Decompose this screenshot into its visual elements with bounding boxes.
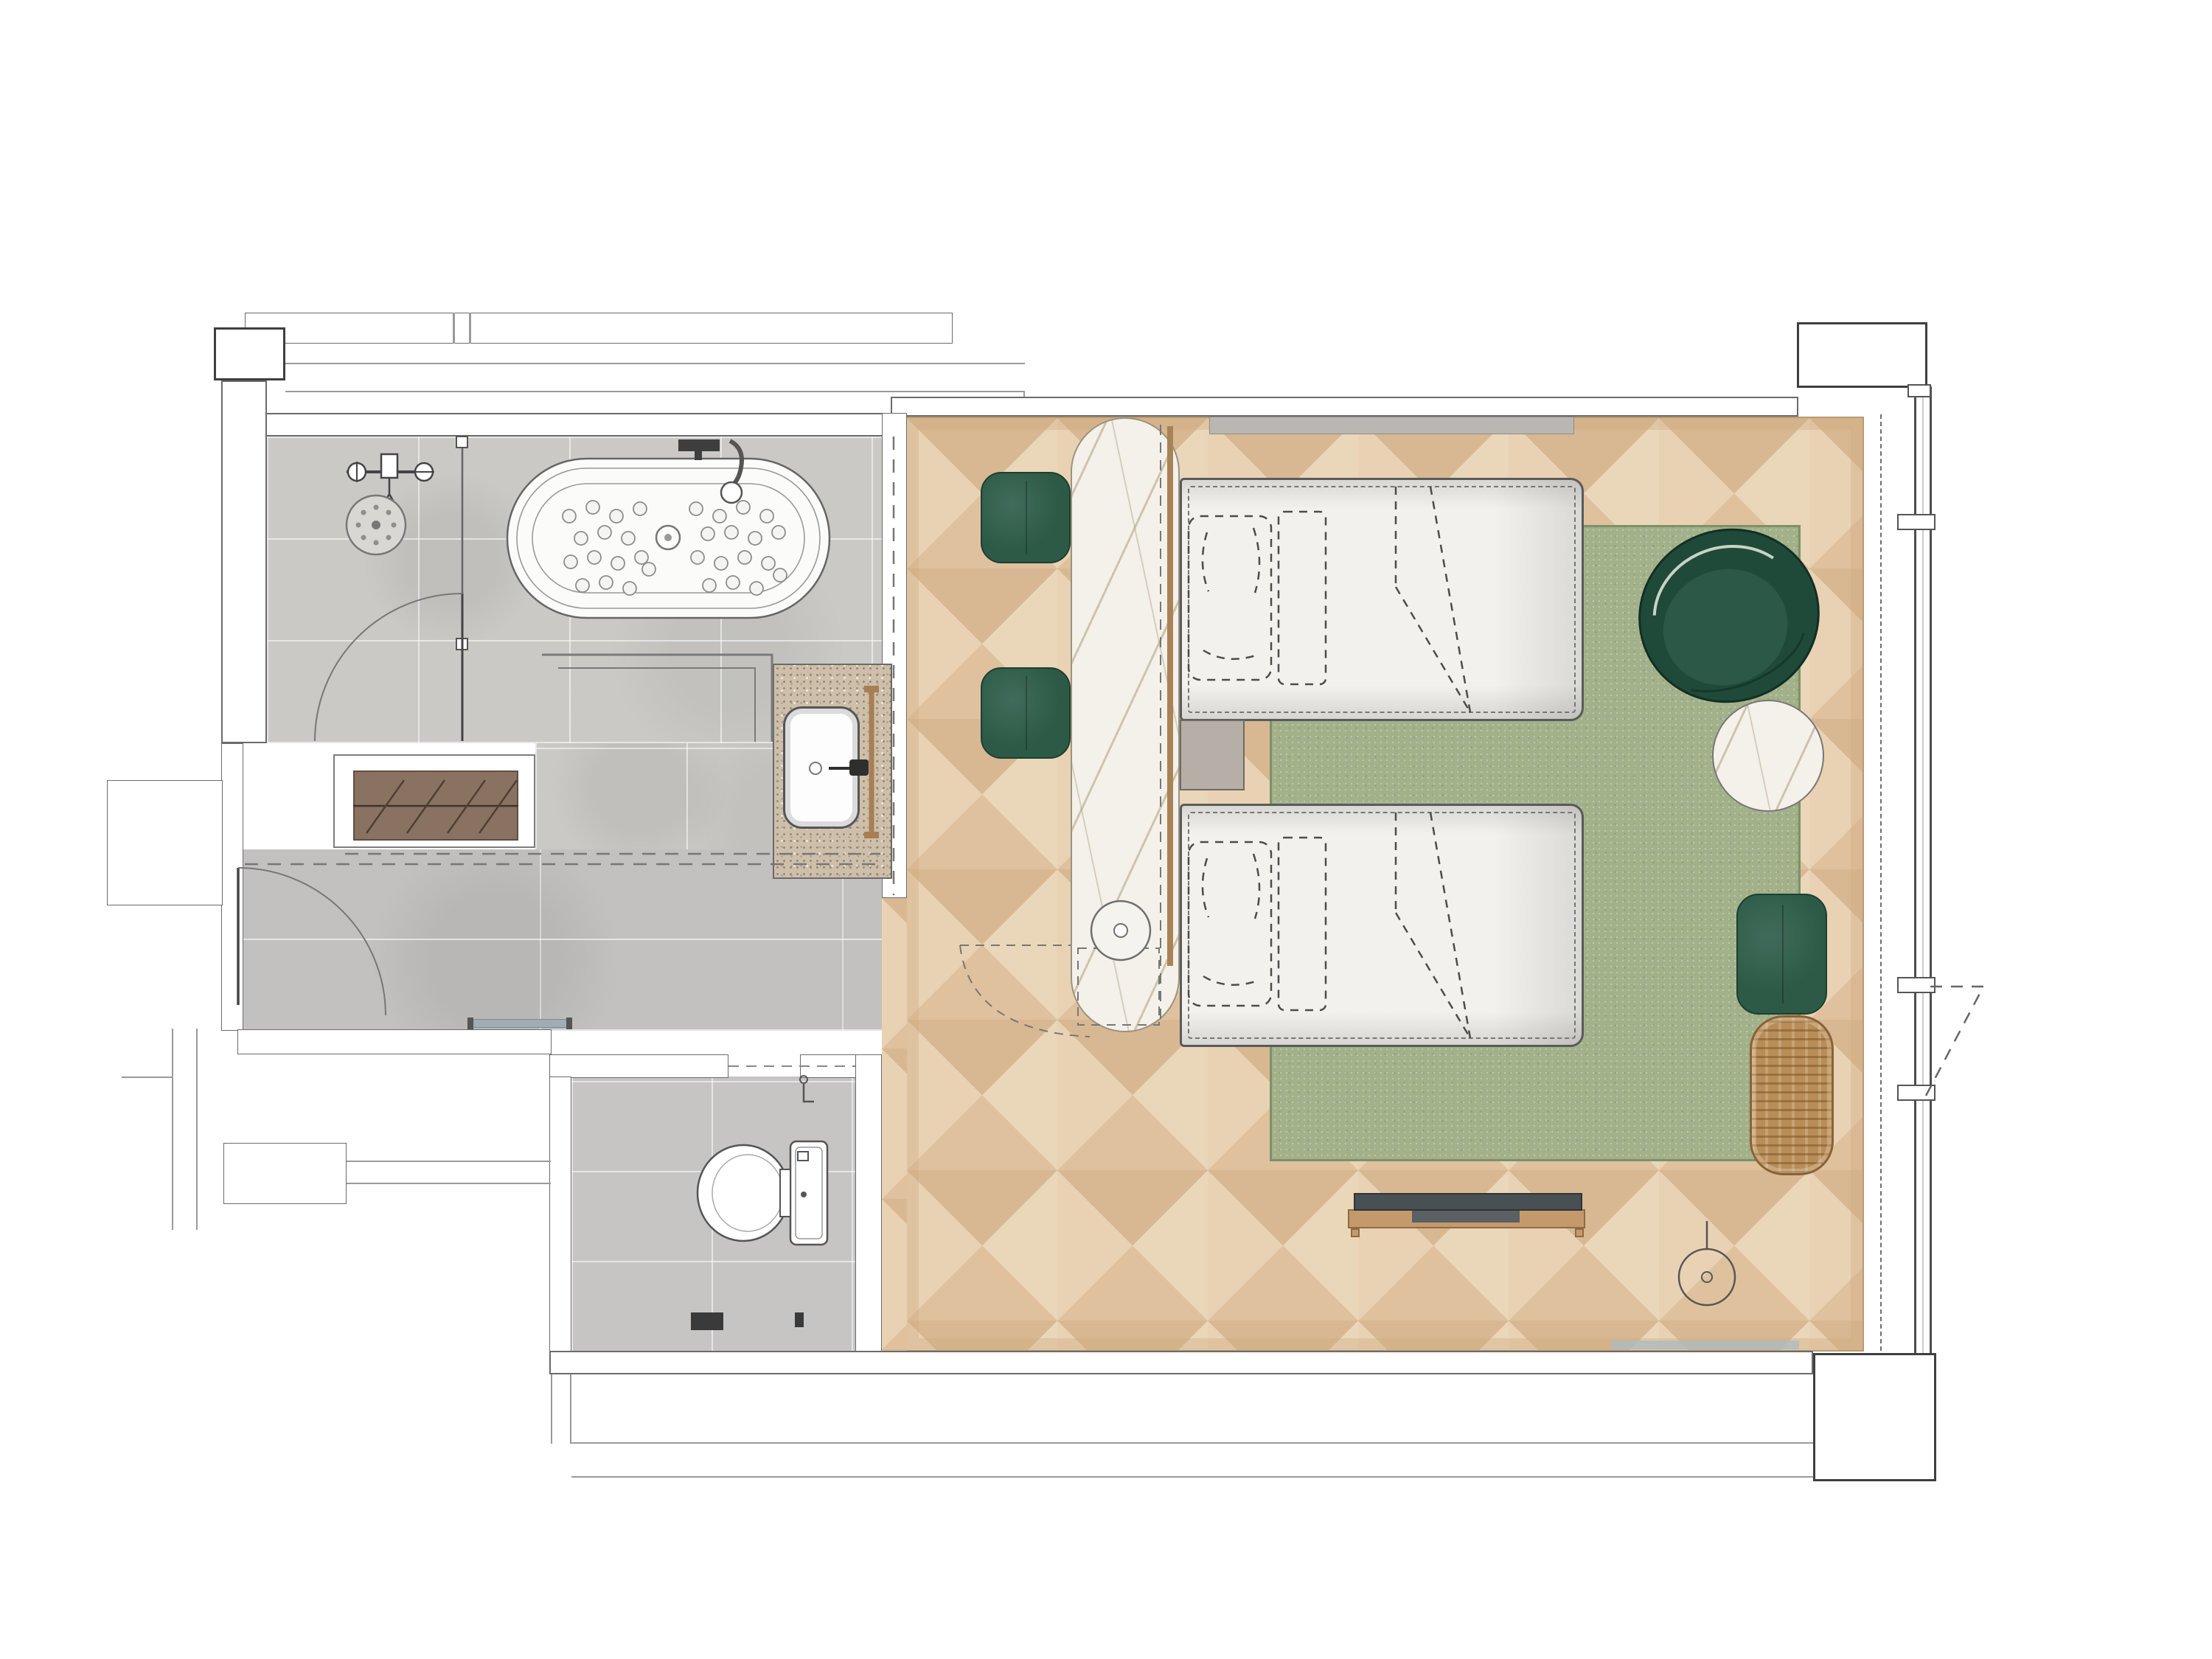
west-wall-lower (221, 743, 243, 1031)
band-tick-1 (453, 313, 455, 344)
curtain-line (1880, 414, 1882, 1351)
desk-stool-2 (981, 667, 1071, 759)
south-line-1 (571, 1442, 1813, 1444)
marble-console (1071, 417, 1180, 1032)
sw-vert-1 (172, 1029, 173, 1230)
west-wall-upper (221, 380, 267, 743)
floor-plan (0, 0, 2212, 1659)
toilet-wall-ext-1 (551, 1374, 552, 1444)
television (1354, 1193, 1582, 1211)
side-table (1712, 700, 1824, 812)
toilet-floor (571, 1077, 855, 1352)
column-bottom-right (1813, 1353, 1936, 1481)
bedroom-north-wall (891, 397, 1798, 417)
toilet-wall-ext-2 (570, 1374, 571, 1444)
bed-2 (1180, 804, 1584, 1047)
window-sill-strip (1611, 1340, 1799, 1349)
chase-line-1 (285, 363, 1025, 364)
sw-vert-2 (196, 1029, 198, 1230)
west-niche (107, 780, 223, 905)
desk-stool-1 (981, 472, 1071, 563)
south-wall (549, 1351, 1813, 1374)
ottoman (1736, 894, 1827, 1015)
corridor-south-wall (237, 1029, 552, 1054)
toilet-west-wall (549, 1077, 571, 1353)
chase-line-2 (285, 391, 1025, 392)
rattan-bench (1750, 1015, 1834, 1175)
north-corridor-band (245, 313, 953, 344)
bed-1 (1180, 478, 1584, 721)
tv-console-leg-right (1575, 1228, 1584, 1237)
tv-console-leg-left (1351, 1228, 1360, 1237)
bedroom-floor-strip (882, 898, 907, 1352)
wardrobe (353, 771, 518, 841)
window-joints (1898, 385, 1983, 1100)
sw-tick (122, 1077, 172, 1078)
column-top-left (214, 327, 285, 380)
television-pedestal (1412, 1211, 1520, 1222)
sw-line-2 (347, 1183, 551, 1184)
entry-threshold (472, 1019, 569, 1028)
vanity-sink (783, 706, 860, 829)
console-wood-trim (1167, 426, 1173, 966)
south-line-2 (571, 1476, 1813, 1478)
band-tick-2 (469, 313, 471, 344)
bathroom-north-wall (257, 413, 891, 437)
sw-line-1 (347, 1161, 551, 1162)
southwest-box (223, 1143, 347, 1204)
headboard-shelf (1209, 417, 1574, 434)
nightstand (1180, 720, 1245, 790)
column-top-right (1797, 322, 1927, 388)
window-wall (1914, 386, 1932, 1353)
toilet-north-wall-left (549, 1054, 728, 1078)
toilet-east-wall (855, 1054, 882, 1353)
